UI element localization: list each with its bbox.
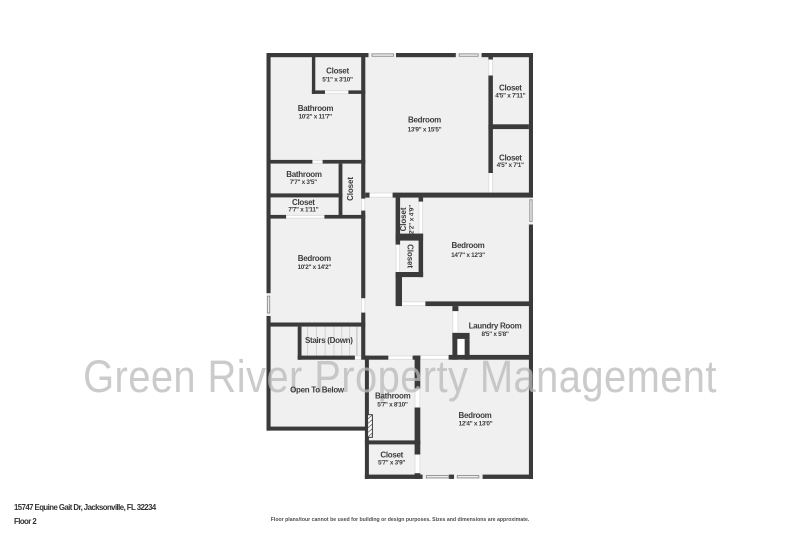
svg-text:13'9" x 15'5": 13'9" x 15'5" — [408, 126, 442, 133]
svg-text:Bedroom: Bedroom — [458, 411, 491, 420]
svg-text:Bedroom: Bedroom — [408, 116, 441, 125]
svg-text:4'5" x 7'11": 4'5" x 7'11" — [495, 93, 525, 100]
svg-text:5'1" x 3'10": 5'1" x 3'10" — [322, 77, 353, 84]
svg-text:14'7" x 12'3": 14'7" x 12'3" — [451, 252, 485, 259]
svg-text:10'2" x 14'2": 10'2" x 14'2" — [297, 264, 331, 271]
svg-text:Bathroom: Bathroom — [375, 391, 411, 400]
svg-text:Open To Below: Open To Below — [290, 385, 345, 394]
svg-text:Closet: Closet — [399, 207, 408, 231]
svg-text:Closet: Closet — [499, 83, 522, 92]
svg-text:Closet: Closet — [499, 153, 522, 162]
svg-text:Closet: Closet — [346, 177, 355, 201]
svg-text:8'5" x 5'8": 8'5" x 5'8" — [481, 331, 508, 338]
svg-text:Bedroom: Bedroom — [298, 254, 331, 263]
svg-text:Closet: Closet — [380, 450, 403, 459]
svg-text:Stairs (Down): Stairs (Down) — [305, 336, 353, 345]
svg-text:7'7" x 3'5": 7'7" x 3'5" — [290, 179, 317, 186]
svg-text:Bedroom: Bedroom — [451, 241, 484, 250]
svg-text:Bathroom: Bathroom — [298, 104, 334, 113]
svg-text:4'5" x 7'1": 4'5" x 7'1" — [497, 162, 524, 169]
svg-text:Closet: Closet — [326, 67, 349, 76]
svg-text:Bathroom: Bathroom — [286, 170, 322, 179]
svg-text:5'7" x 3'9": 5'7" x 3'9" — [378, 460, 405, 467]
svg-text:Laundry Room: Laundry Room — [469, 322, 522, 331]
svg-text:7'7" x 1'11": 7'7" x 1'11" — [288, 206, 318, 213]
svg-text:5'7" x 8'10": 5'7" x 8'10" — [377, 402, 408, 409]
svg-text:Closet: Closet — [405, 244, 414, 268]
svg-text:10'2" x 11'7": 10'2" x 11'7" — [299, 114, 333, 121]
svg-text:12'4" x 13'0": 12'4" x 13'0" — [459, 421, 493, 428]
svg-text:2'2" x 4'9": 2'2" x 4'9" — [409, 205, 416, 234]
